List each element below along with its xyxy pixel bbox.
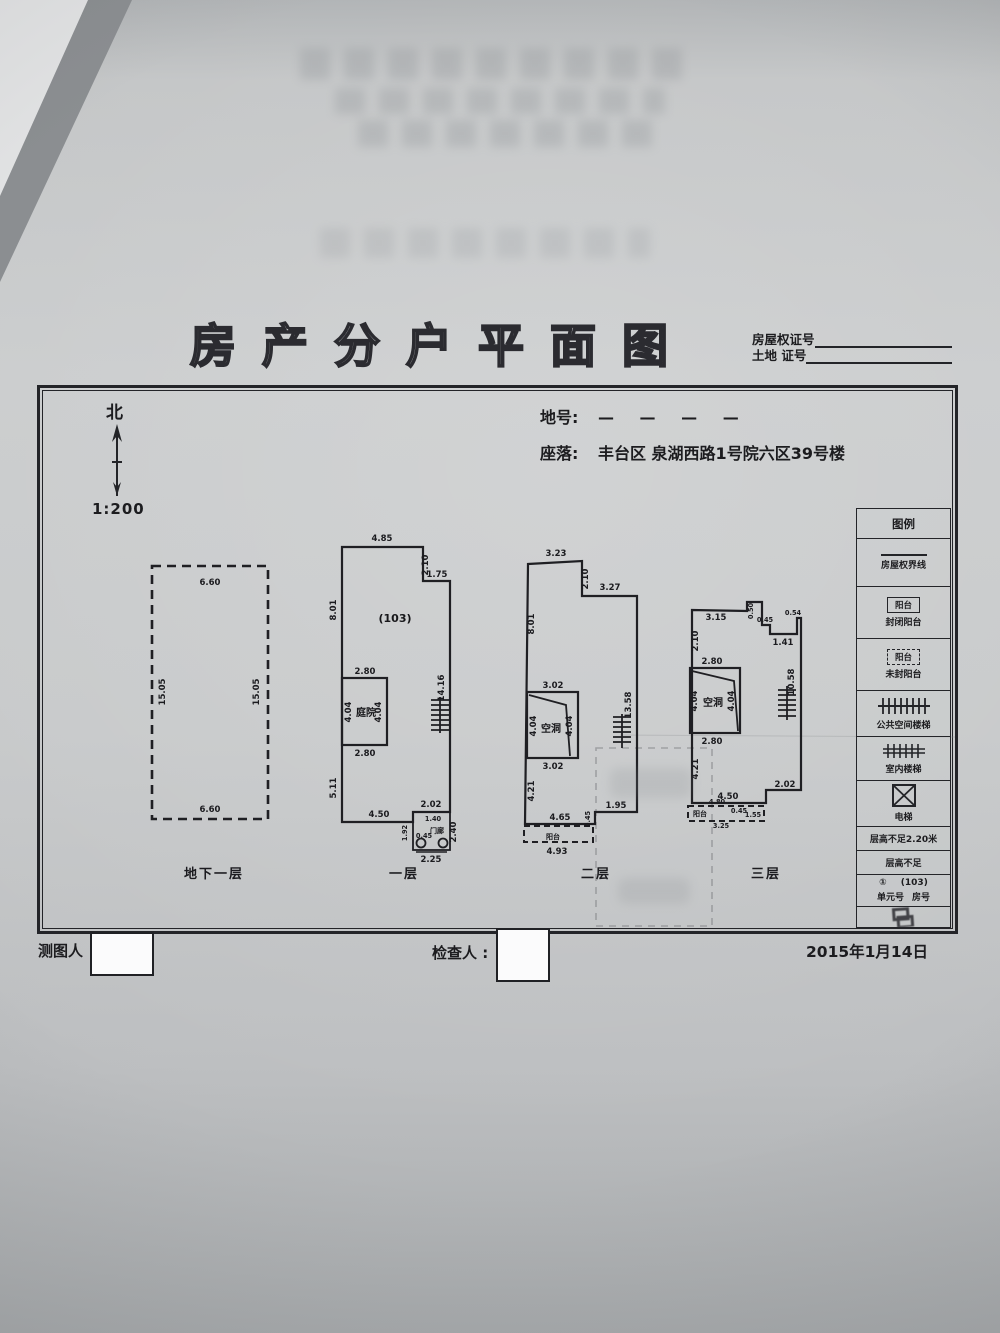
legend-item-elevator: 电梯 [857, 781, 950, 827]
elevator-icon [891, 784, 917, 808]
unit-number-symbol: ① [879, 878, 887, 888]
open-balcony-icon: 阳台 [887, 649, 920, 665]
dim-label: 2.80 [355, 667, 376, 677]
dim-label: 2.02 [421, 800, 442, 810]
surveyor-label: 测图人 [38, 940, 83, 961]
dim-label: 8.01 [527, 613, 537, 634]
dim-label: 3.27 [600, 583, 621, 593]
dim-label: 1.40 [425, 815, 442, 823]
dim-label: 0.54 [785, 609, 802, 617]
void-label: 空洞 [703, 696, 723, 709]
floor-plan-basement: 6.60 6.60 15.05 15.05 地下一层 [152, 566, 268, 882]
balcony-label: 阳台 [693, 809, 707, 818]
dim-label: 6.60 [200, 578, 221, 588]
dim-label: 4.21 [691, 758, 701, 779]
dim-label: 2.25 [421, 855, 442, 865]
dim-label: 8.01 [329, 599, 339, 620]
floor-plan-second: 空洞 阳台 3.23 2.10 3.27 8.01 13.58 3.02 4.0… [524, 549, 637, 882]
room-number-symbol: (103) [901, 878, 928, 888]
legend-item-open-balcony: 阳台 未封阳台 [857, 639, 950, 691]
dim-label: 13.58 [624, 691, 634, 718]
floor-plans-drawing: 6.60 6.60 15.05 15.05 地下一层 (103) 庭院 门廊 4… [0, 0, 1000, 1333]
balcony-label: 阳台 [546, 832, 560, 841]
boundary-line-icon [881, 554, 927, 556]
dim-label: 4.65 [550, 813, 571, 823]
indoor-stair-icon [880, 742, 928, 760]
void-label: 空洞 [541, 722, 561, 735]
dim-label: 4.04 [374, 701, 384, 722]
dim-label: 0.45 [584, 810, 592, 827]
floor-name: 三层 [751, 867, 781, 882]
courtyard-label: 庭院 [356, 706, 376, 719]
dim-label: 14.16 [437, 674, 447, 701]
enclosed-balcony-icon: 阳台 [887, 597, 920, 613]
dim-label: 15.05 [158, 678, 168, 705]
legend-item-unit-room: ① (103) 单元号 房号 [857, 875, 950, 907]
public-stair-icon [875, 696, 933, 716]
dim-label: 3.23 [546, 549, 567, 559]
dim-label: 4.21 [527, 780, 537, 801]
dim-label: 10.58 [787, 668, 797, 695]
dim-label: 4.04 [727, 690, 737, 711]
dim-label: 1.92 [401, 824, 409, 841]
dim-label: 0.45 [416, 832, 433, 840]
floor-name: 二层 [581, 867, 611, 882]
dim-label: 3.25 [713, 822, 730, 830]
dim-label: 0.45 [757, 616, 774, 624]
room-number: (103) [378, 612, 411, 625]
floor-name: 地下一层 [184, 866, 244, 882]
dim-label: 4.04 [565, 715, 575, 736]
dim-label: 2.10 [691, 630, 701, 651]
dim-label: 0.50 [747, 602, 755, 619]
dim-label: 4.04 [690, 690, 700, 711]
checker-redaction-box [496, 928, 550, 982]
dim-label: 2.80 [702, 737, 723, 747]
floor-plan-third: 空洞 阳台 3.15 0.50 0.45 1.41 0.54 2.10 2.80… [688, 602, 802, 882]
floor-name: 一层 [389, 867, 419, 882]
dim-label: 4.85 [372, 534, 393, 544]
dim-label: 3.15 [706, 613, 727, 623]
photo-smudge [618, 878, 690, 904]
dim-label: 5.11 [329, 777, 339, 798]
checker-label: 检查人 : [432, 942, 488, 963]
dim-label: 3.02 [543, 762, 564, 772]
dim-label: 4.04 [344, 701, 354, 722]
dim-label: 4.50 [369, 810, 390, 820]
date: 2015年1月14日 [806, 940, 928, 962]
legend-item-indoor-stair: 室内楼梯 [857, 737, 950, 781]
floor-plan-first: (103) 庭院 门廊 4.85 2.10 1.75 8.01 14.16 2.… [329, 534, 459, 882]
dim-label: 2.10 [581, 568, 591, 589]
legend-stamp-cell [857, 907, 950, 927]
legend: 图例 房屋权界线 阳台 封闭阳台 阳台 未封阳台 公共空间楼梯 [856, 508, 951, 928]
dim-label: 1.75 [427, 570, 448, 580]
dim-label: 1.55 [745, 811, 762, 819]
legend-item-public-stair: 公共空间楼梯 [857, 691, 950, 737]
legend-title-cell: 图例 [857, 509, 950, 539]
document-photo: 房产分户平面图 房屋权证号 土地 证号 北 1:200 地号: — — — — … [0, 0, 1000, 1333]
dim-label: 1.41 [773, 638, 794, 648]
dim-label: 4.80 [709, 798, 726, 806]
dim-label: 2.02 [775, 780, 796, 790]
dim-label: 2.80 [355, 749, 376, 759]
legend-item-low-height-220: 层高不足2.20米 [857, 827, 950, 851]
legend-item-enclosed-balcony: 阳台 封闭阳台 [857, 587, 950, 639]
dim-label: 6.60 [200, 805, 221, 815]
stamp-mark [881, 907, 926, 927]
dim-label: 2.80 [702, 657, 723, 667]
legend-item-boundary: 房屋权界线 [857, 539, 950, 587]
dim-label: 1.95 [606, 801, 627, 811]
photo-smudge [610, 768, 692, 798]
dim-label: 2.40 [449, 821, 459, 842]
legend-title: 图例 [892, 516, 915, 532]
legend-item-low-height: 层高不足 [857, 851, 950, 875]
dim-label: 4.93 [547, 847, 568, 857]
dim-label: 4.04 [529, 715, 539, 736]
surveyor-redaction-box [90, 932, 154, 976]
dim-label: 15.05 [252, 678, 262, 705]
dim-label: 3.02 [543, 681, 564, 691]
